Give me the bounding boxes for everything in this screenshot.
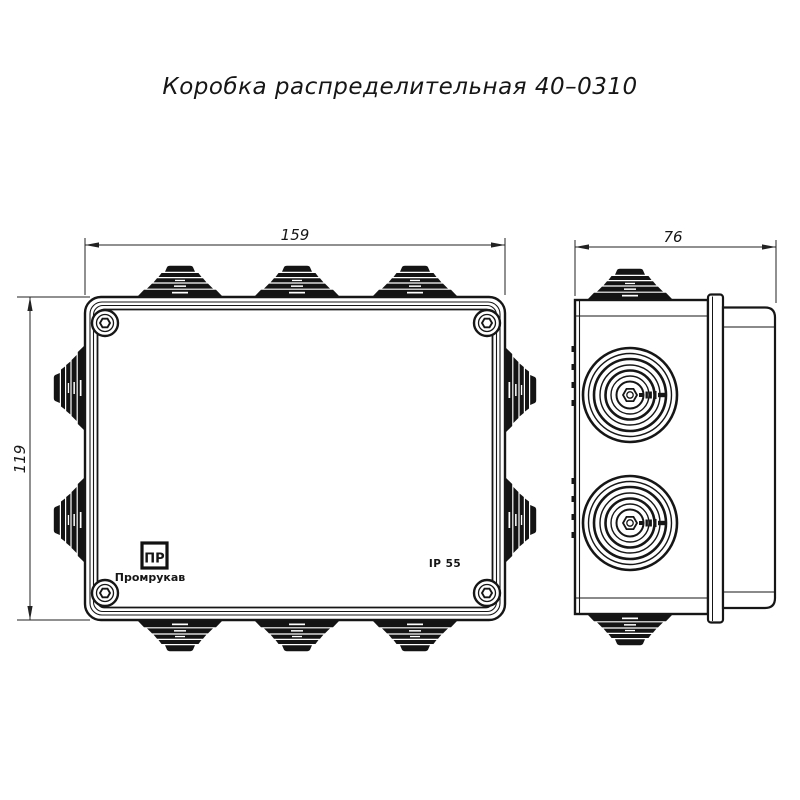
cable-gland-left-1 (54, 345, 85, 431)
dim-width-label: 159 (281, 226, 310, 244)
side-cable-gland-bottom (587, 614, 673, 645)
front-view: ПР Промрукав IP 55 (54, 266, 536, 651)
distribution-box-drawing: Коробка распределительная 40–0310 ПР (0, 0, 800, 800)
cable-gland-top-2 (254, 266, 340, 297)
cable-gland-left-2 (54, 477, 85, 563)
promrukav-logo-monogram: ПР (144, 552, 164, 567)
box-body-outline (575, 300, 708, 614)
cable-gland-bottom-2 (254, 620, 340, 651)
cable-gland-bottom-3 (372, 620, 458, 651)
corner-screw-top-right (474, 310, 500, 336)
side-cable-gland-top (587, 269, 673, 300)
corner-screw-top-left (92, 310, 118, 336)
cable-gland-top-1 (137, 266, 223, 297)
cable-gland-right-1 (505, 347, 536, 433)
technical-drawing-page: Коробка распределительная 40–0310 ПР (0, 0, 800, 800)
side-view (572, 269, 776, 645)
dim-depth-label: 76 (663, 228, 682, 246)
dim-height-label: 119 (11, 445, 29, 474)
lid-flange (708, 295, 723, 623)
lid-panel (723, 308, 775, 609)
corner-screw-bottom-right (474, 580, 500, 606)
ip-rating-label: IP 55 (429, 558, 461, 570)
cable-gland-right-2 (505, 477, 536, 563)
cable-gland-bottom-1 (137, 620, 223, 651)
drawing-title: Коробка распределительная 40–0310 (162, 74, 637, 100)
brand-label: Промрукав (115, 571, 186, 584)
cable-gland-top-3 (372, 266, 458, 297)
